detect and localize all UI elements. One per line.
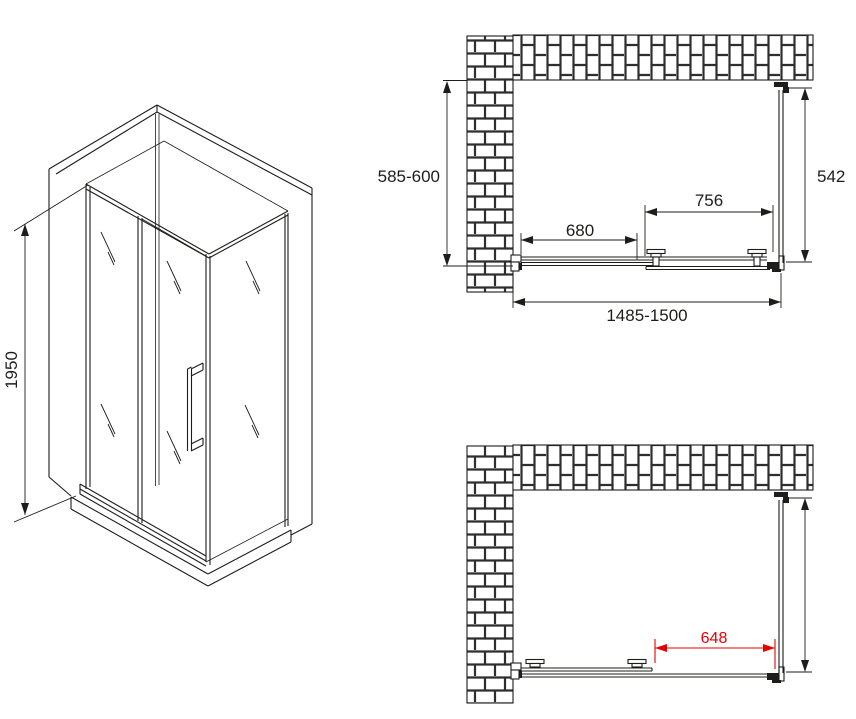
glass-marks bbox=[101, 232, 260, 464]
roller-right bbox=[748, 250, 766, 267]
plan-view-top: 585-600 542 756 bbox=[378, 35, 846, 325]
door-assembly-closed bbox=[511, 250, 784, 273]
roller-left bbox=[647, 250, 665, 267]
dimension-fixed-segment: 680 bbox=[521, 221, 637, 260]
side-panel-label: 542 bbox=[817, 167, 845, 186]
plan-view-bottom: 648 bbox=[467, 445, 813, 703]
door-assembly-open bbox=[511, 660, 784, 684]
roller-left bbox=[526, 660, 544, 668]
wall-depth-label: 585-600 bbox=[378, 167, 440, 186]
roller-right bbox=[628, 660, 646, 668]
fixed-segment-label: 680 bbox=[566, 221, 594, 240]
door-handle bbox=[188, 363, 204, 451]
walls-outline bbox=[49, 105, 312, 535]
brick-wall-side bbox=[467, 36, 513, 292]
sliding-panel-label: 756 bbox=[695, 191, 723, 210]
wall-bracket bbox=[774, 82, 788, 87]
brick-wall-side bbox=[467, 446, 513, 703]
brick-wall-back bbox=[513, 445, 813, 490]
door-opening-label: 648 bbox=[701, 630, 728, 647]
corner-bracket bbox=[767, 667, 784, 683]
dimension-sliding-panel: 756 bbox=[645, 191, 773, 256]
dimension-height: 1950 bbox=[2, 185, 88, 522]
height-dimension-label: 1950 bbox=[2, 351, 21, 389]
shower-enclosure-drawing: 1950 bbox=[0, 0, 856, 719]
dimension-overall-width: 1485-1500 bbox=[513, 272, 781, 325]
brick-wall-back bbox=[513, 35, 813, 80]
enclosure-frame bbox=[80, 141, 288, 566]
wall-bracket bbox=[774, 492, 788, 497]
dimension-side-panel: 542 bbox=[786, 88, 845, 262]
dimension-door-opening: 648 bbox=[655, 630, 775, 669]
side-panel bbox=[774, 492, 789, 673]
overall-width-label: 1485-1500 bbox=[606, 306, 687, 325]
side-panel bbox=[774, 82, 789, 263]
dimension-side-panel-unlabeled bbox=[786, 498, 812, 672]
isometric-view: 1950 bbox=[2, 105, 312, 586]
technical-drawing-canvas: 1950 bbox=[0, 0, 856, 719]
